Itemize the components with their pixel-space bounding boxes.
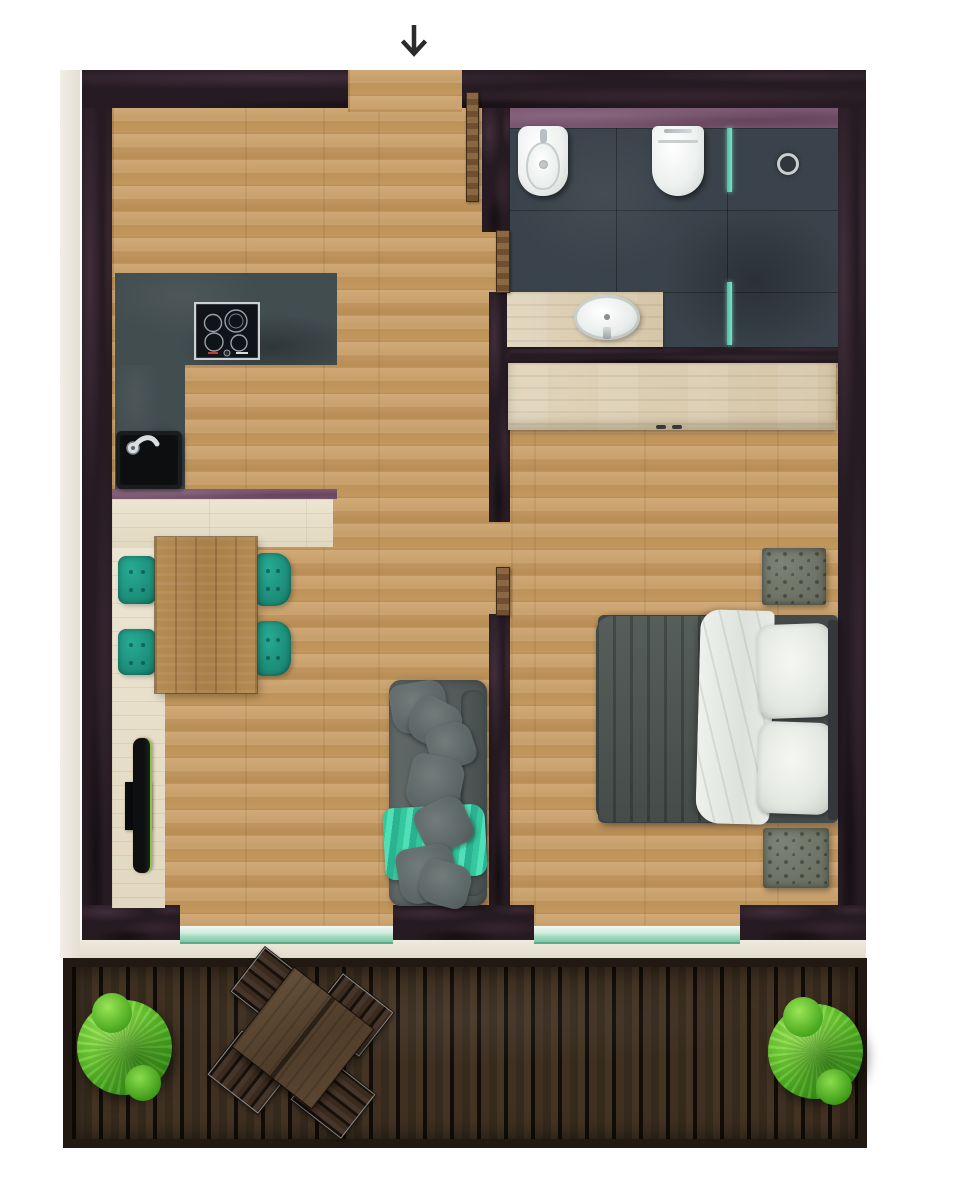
dining-chair-left-1 bbox=[118, 556, 156, 604]
bathroom-left-wall bbox=[482, 108, 510, 232]
ottoman bbox=[762, 548, 826, 605]
bedroom-door-leaf bbox=[496, 567, 510, 616]
entrance-arrow-icon bbox=[398, 22, 430, 62]
toilet bbox=[652, 126, 704, 196]
dining-chair-left-2 bbox=[118, 629, 156, 675]
kitchen-low-wall bbox=[112, 489, 337, 499]
wall-left bbox=[82, 108, 112, 940]
shower-glass-panel bbox=[727, 282, 732, 345]
ottoman bbox=[763, 828, 829, 888]
washbasin bbox=[574, 295, 640, 340]
washbasin-faucet bbox=[603, 327, 611, 339]
bidet bbox=[518, 126, 568, 196]
wardrobe-handle bbox=[672, 425, 682, 429]
wall-bottom-center bbox=[393, 905, 534, 940]
bed-pillow bbox=[756, 721, 833, 816]
bidet-faucet bbox=[540, 129, 547, 143]
wardrobe bbox=[508, 363, 836, 430]
bidet-drain bbox=[539, 160, 548, 169]
balcony-glass-door-bedroom bbox=[534, 926, 740, 944]
wall-bottom-left bbox=[82, 905, 180, 940]
bed-headboard bbox=[828, 620, 838, 820]
partition-wall-lower bbox=[489, 614, 510, 908]
dining-chair-right-1 bbox=[255, 553, 291, 606]
bathroom-door-leaf bbox=[496, 230, 510, 293]
entry-door-leaf bbox=[466, 92, 479, 202]
exterior-edge-strip bbox=[60, 70, 80, 958]
bathroom-bottom-wall bbox=[489, 347, 838, 363]
floor-plan-canvas bbox=[0, 0, 954, 1200]
wall-right bbox=[836, 108, 866, 940]
shower-drain bbox=[777, 153, 799, 175]
hob-icon bbox=[194, 302, 260, 360]
balcony-glass-door-living bbox=[180, 926, 393, 944]
kitchen-sink bbox=[116, 431, 182, 489]
toilet-seat-line bbox=[658, 140, 698, 143]
tv-screen bbox=[133, 738, 152, 873]
dining-table bbox=[155, 537, 257, 693]
plant bbox=[77, 1000, 172, 1095]
shower-glass-panel bbox=[727, 128, 732, 192]
bed-pillow bbox=[756, 623, 833, 720]
toilet-flush-plate bbox=[664, 129, 692, 133]
wardrobe-handle bbox=[656, 425, 666, 429]
wall-bottom-right bbox=[740, 905, 866, 940]
dining-chair-right-2 bbox=[255, 621, 291, 676]
sink-faucet-icon bbox=[116, 431, 182, 489]
bathroom-accent-wall-band bbox=[505, 108, 838, 128]
entrance-opening bbox=[348, 70, 462, 112]
balcony-deck bbox=[63, 958, 867, 1148]
washbasin-drain bbox=[604, 314, 610, 320]
plant bbox=[768, 1004, 863, 1099]
